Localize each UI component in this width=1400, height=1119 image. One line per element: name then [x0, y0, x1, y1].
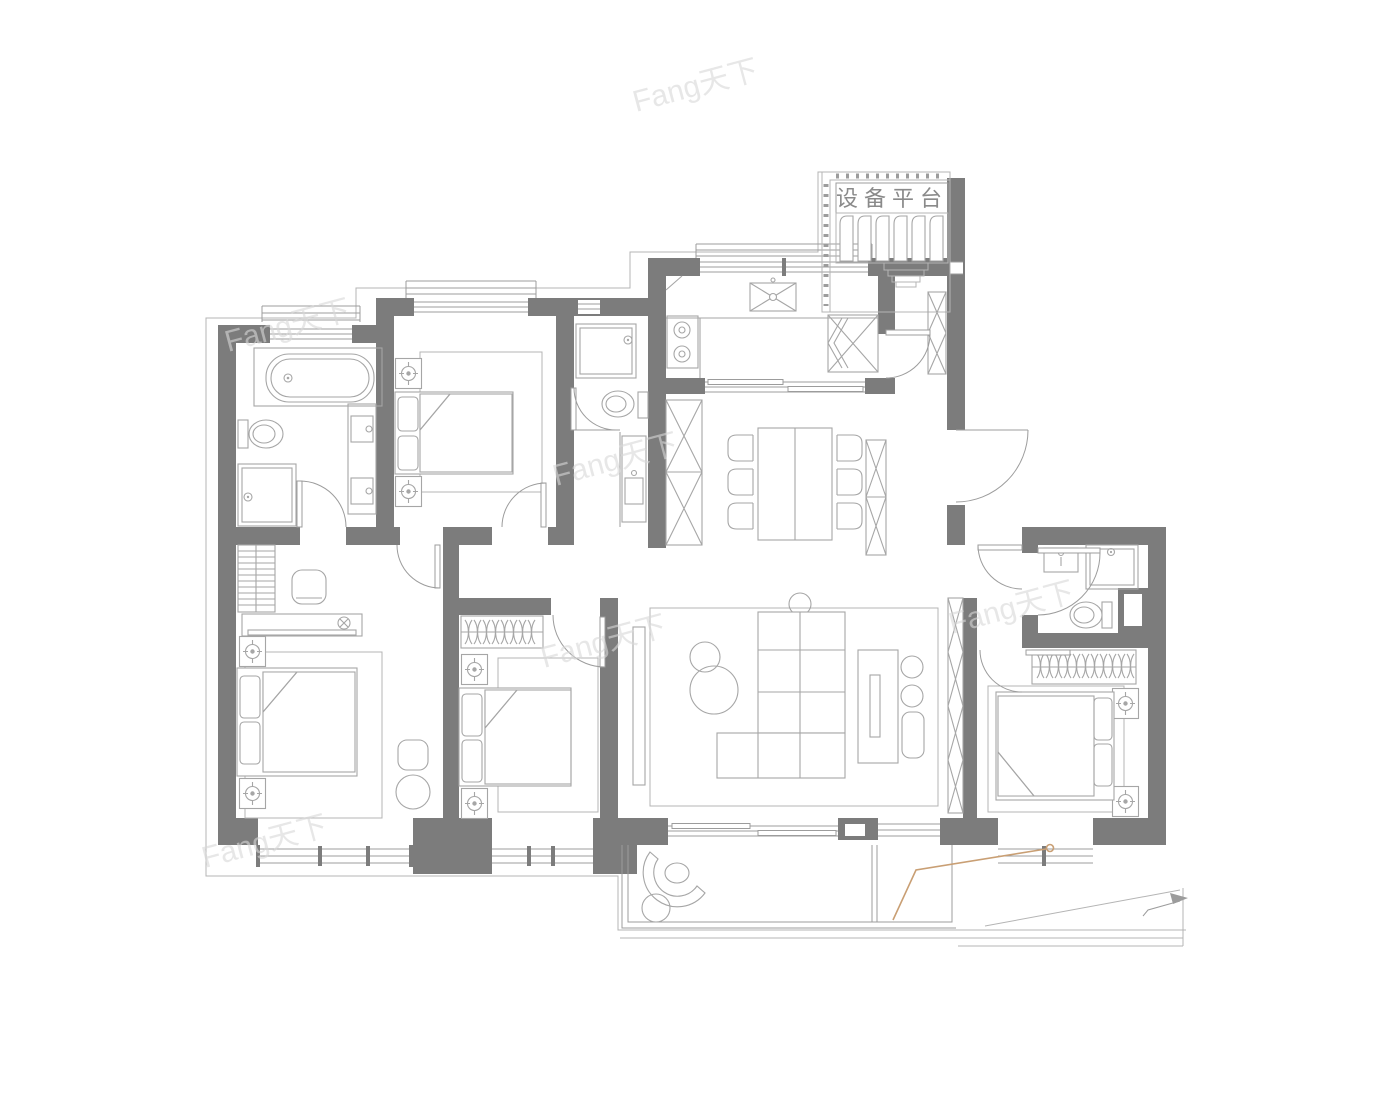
louvers — [836, 213, 948, 263]
bedroom-3 — [237, 545, 430, 818]
living-room — [633, 593, 963, 813]
balcony — [622, 845, 1054, 929]
nightstand-light — [396, 477, 422, 507]
bedroom-right — [988, 650, 1139, 817]
bedroom2-door — [502, 483, 546, 527]
pier-inset — [845, 824, 865, 836]
balcony-compartment-window — [878, 824, 940, 836]
sofa — [717, 593, 845, 778]
dresser — [242, 614, 362, 636]
bed — [996, 692, 1114, 800]
bedroom-2 — [395, 352, 542, 507]
kitchen — [666, 276, 878, 392]
master-bathroom — [238, 348, 382, 526]
floor-plan: 设备平台 — [0, 0, 1400, 1119]
bed — [237, 668, 357, 776]
bathroom-2 — [574, 324, 648, 527]
lounge-chair — [643, 852, 705, 907]
bedroom3-door — [397, 545, 440, 588]
shower — [238, 464, 296, 526]
dining-area — [666, 400, 886, 555]
bed — [459, 688, 571, 786]
round-table — [642, 894, 670, 922]
floor-plan-page: 设备平台 — [0, 0, 1400, 1119]
nightstand-light — [1113, 787, 1139, 817]
shoe-cabinet — [928, 292, 946, 374]
coffee-table — [690, 666, 738, 714]
toilet — [602, 391, 648, 418]
kitchen-sink — [750, 278, 796, 311]
hall-door — [978, 545, 1022, 589]
dining-table — [758, 428, 832, 540]
chair — [398, 740, 428, 770]
double-vanity — [348, 404, 376, 514]
master-bath-door — [297, 481, 346, 527]
living-balcony-sliding-door — [668, 824, 838, 837]
equipment-platform-label: 设备平台 — [836, 186, 948, 211]
north-arrow — [1143, 893, 1188, 916]
slatted-shelf — [238, 545, 275, 612]
bedroom4-bay-window — [492, 846, 593, 866]
bathtub — [254, 348, 382, 406]
nightstand-light — [462, 655, 488, 685]
drain-pipe — [893, 849, 1046, 920]
toilet — [238, 420, 283, 448]
nightstand-light — [462, 789, 488, 819]
stove — [667, 316, 698, 368]
armchair — [292, 570, 326, 604]
drain-outlet — [1047, 845, 1054, 852]
nightstand-light — [396, 359, 422, 389]
side-table — [902, 712, 924, 758]
wardrobe — [461, 616, 543, 648]
kitchen-sliding-door — [705, 380, 865, 393]
exterior-outline — [206, 172, 1186, 946]
entry-vestibule — [928, 292, 946, 374]
nightstand-light — [240, 779, 266, 809]
kitchen-door — [886, 330, 930, 378]
tv-console — [858, 650, 898, 763]
shower — [576, 324, 636, 378]
watermark: Fang天下 — [945, 576, 1078, 641]
tall-cabinet — [666, 400, 702, 545]
nightstand-light — [1113, 689, 1139, 719]
bed — [395, 392, 513, 474]
stool — [901, 656, 923, 678]
fridge-cabinet — [828, 315, 878, 372]
watermark: Fang天下 — [221, 294, 354, 359]
bedroom2-window — [406, 281, 536, 316]
round-table — [396, 775, 430, 809]
linen-niche — [1124, 594, 1142, 626]
sideboard — [866, 440, 886, 555]
nightstand-light — [240, 637, 266, 667]
watermark: Fang天下 — [629, 54, 762, 119]
entry-door — [956, 430, 1028, 502]
small-bath-window — [578, 300, 600, 314]
stool — [901, 685, 923, 707]
entry-wall-window — [950, 262, 963, 274]
